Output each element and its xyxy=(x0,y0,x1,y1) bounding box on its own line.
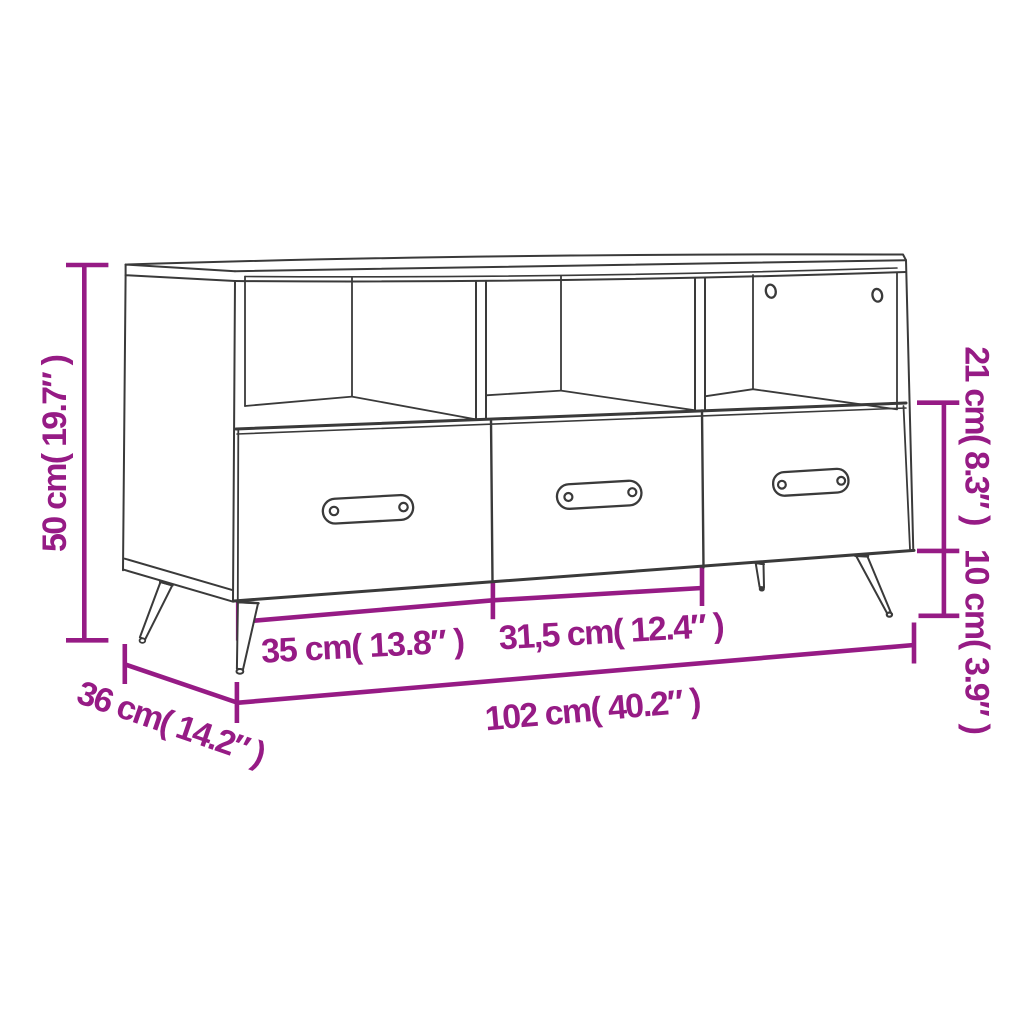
svg-text:21 cm( 8.3″ ): 21 cm( 8.3″ ) xyxy=(958,346,996,526)
svg-text:10 cm( 3.9″ ): 10 cm( 3.9″ ) xyxy=(958,549,996,735)
svg-text:50 cm( 19.7″ ): 50 cm( 19.7″ ) xyxy=(36,354,74,552)
